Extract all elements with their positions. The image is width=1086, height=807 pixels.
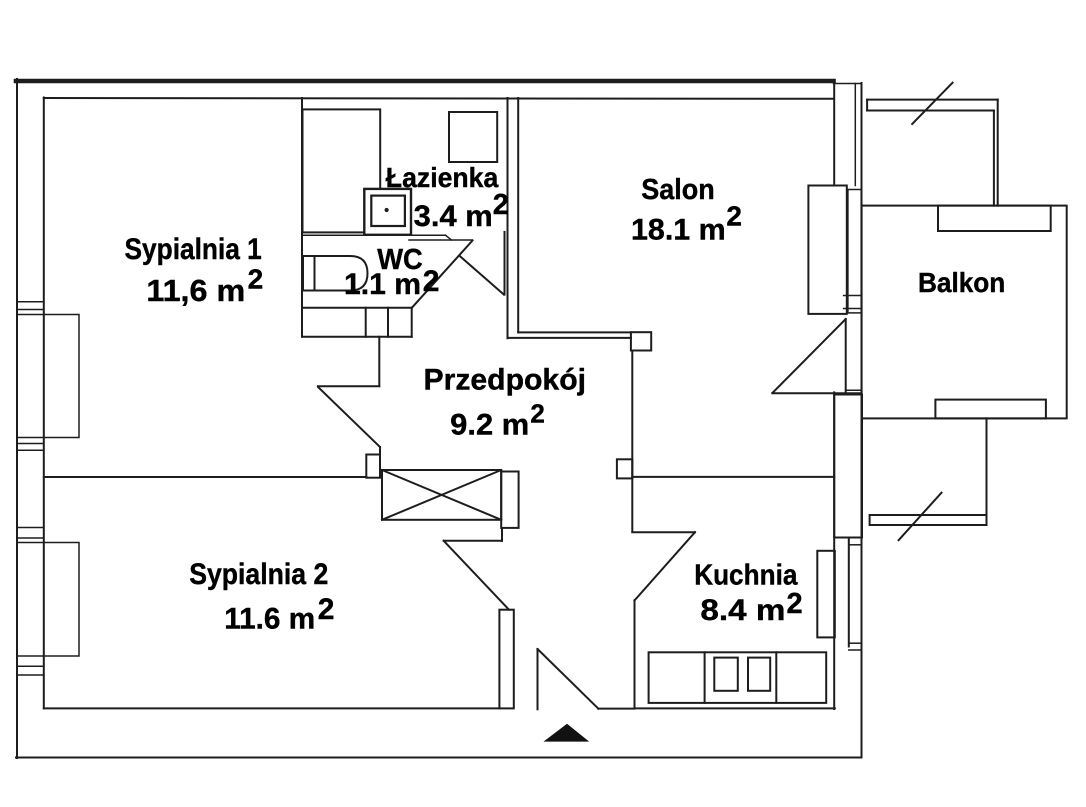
svg-text:11,6 m: 11,6 m: [146, 273, 245, 308]
svg-text:2: 2: [787, 588, 803, 620]
svg-text:Sypialnia 2: Sypialnia 2: [189, 558, 328, 591]
svg-text:2: 2: [318, 593, 335, 626]
svg-text:Balkon: Balkon: [918, 267, 1005, 298]
svg-text:Przedpokój: Przedpokój: [424, 363, 587, 396]
svg-text:2: 2: [726, 200, 742, 231]
svg-text:2: 2: [530, 399, 544, 429]
svg-text:9.2 m: 9.2 m: [450, 409, 529, 442]
svg-text:Łazienka: Łazienka: [386, 162, 499, 193]
svg-text:11.6 m: 11.6 m: [224, 603, 315, 636]
svg-text:2: 2: [493, 189, 509, 221]
svg-text:Salon: Salon: [641, 174, 715, 206]
svg-text:8.4 m: 8.4 m: [700, 594, 785, 627]
svg-text:2: 2: [423, 265, 440, 298]
svg-text:Sypialnia 1: Sypialnia 1: [125, 233, 262, 266]
svg-text:Kuchnia: Kuchnia: [694, 559, 798, 591]
svg-text:1.1 m: 1.1 m: [344, 268, 421, 301]
svg-text:18.1 m: 18.1 m: [631, 214, 726, 247]
svg-text:2: 2: [248, 263, 264, 294]
svg-text:3.4 m: 3.4 m: [414, 200, 493, 233]
